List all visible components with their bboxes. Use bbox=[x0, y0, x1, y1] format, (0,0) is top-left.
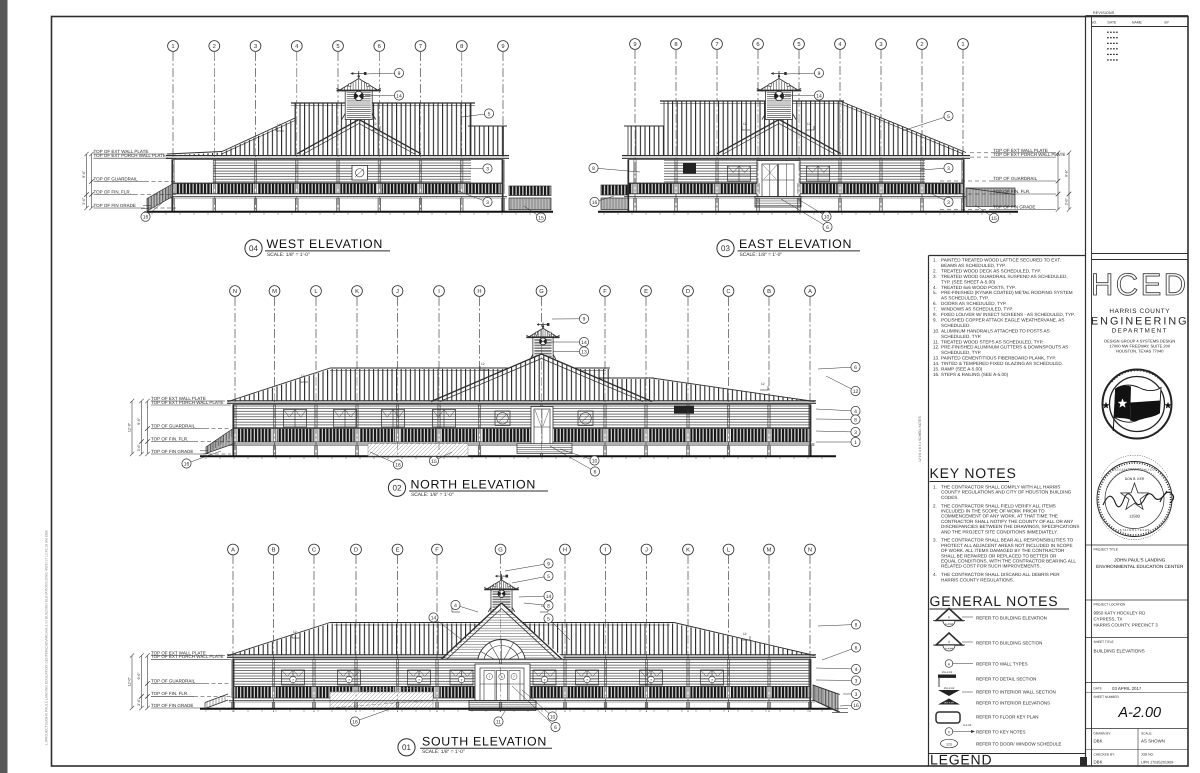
svg-text:10: 10 bbox=[824, 214, 830, 220]
svg-text:11583: 11583 bbox=[1129, 514, 1141, 519]
svg-text:E: E bbox=[644, 289, 648, 295]
svg-text:SCALE:: SCALE: bbox=[1141, 732, 1152, 736]
svg-text:TOP OF FIN GRADE: TOP OF FIN GRADE bbox=[94, 203, 136, 208]
svg-text:14: 14 bbox=[396, 93, 402, 99]
svg-text:6: 6 bbox=[854, 365, 857, 371]
svg-text:D: D bbox=[354, 548, 358, 554]
svg-text:12: 12 bbox=[481, 362, 485, 366]
svg-text:M: M bbox=[767, 548, 772, 554]
svg-text:J: J bbox=[396, 289, 399, 295]
svg-text:7: 7 bbox=[715, 42, 718, 48]
svg-text:7: 7 bbox=[544, 678, 546, 682]
svg-text:LEGEND: LEGEND bbox=[930, 752, 992, 768]
svg-text:TOP OF EXT PORCH WALL PLATE: TOP OF EXT PORCH WALL PLATE bbox=[151, 400, 223, 405]
svg-text:A-#/##: A-#/## bbox=[945, 647, 954, 651]
svg-text:SHEET TITLE: SHEET TITLE bbox=[1094, 640, 1114, 644]
svg-text:SOUTH ELEVATION: SOUTH ELEVATION bbox=[422, 734, 547, 748]
svg-text:14: 14 bbox=[546, 594, 552, 600]
svg-text:GENERAL NOTES: GENERAL NOTES bbox=[930, 593, 1059, 609]
svg-text:7: 7 bbox=[711, 678, 713, 682]
svg-text:6.: 6. bbox=[933, 301, 937, 306]
svg-text:6: 6 bbox=[855, 645, 858, 651]
svg-text:TOP OF EXT PORCH WALL PLATE: TOP OF EXT PORCH WALL PLATE bbox=[993, 152, 1065, 157]
svg-text:#: # bbox=[948, 640, 950, 644]
svg-text:H: H bbox=[563, 548, 567, 554]
svg-text:#: # bbox=[948, 616, 950, 620]
svg-text:HARRIS COUNTY REGULATIONS.: HARRIS COUNTY REGULATIONS. bbox=[941, 577, 1014, 582]
svg-text:7: 7 bbox=[489, 675, 491, 679]
svg-text:4: 4 bbox=[454, 603, 457, 609]
svg-text:A: A bbox=[808, 289, 812, 295]
svg-text:S T A T E O F T E X A S: S T A T E O F T E X A S bbox=[1120, 528, 1150, 532]
svg-text:UPN 17035201909: UPN 17035201909 bbox=[1141, 761, 1173, 765]
svg-text:11: 11 bbox=[496, 719, 501, 725]
svg-text:HOUSTON, TEXAS 77040: HOUSTON, TEXAS 77040 bbox=[1116, 349, 1164, 354]
svg-text:3: 3 bbox=[855, 678, 858, 684]
svg-text:04: 04 bbox=[249, 244, 258, 253]
svg-text:TREATED WOOD GUARDRAIL SUSPEND: TREATED WOOD GUARDRAIL SUSPEND AS SCHEDU… bbox=[941, 274, 1068, 279]
svg-text:8.: 8. bbox=[933, 312, 937, 317]
svg-text:TREATED 6x6 WOOD POSTS, TYP.: TREATED 6x6 WOOD POSTS, TYP. bbox=[941, 285, 1016, 290]
svg-text:WEST ELEVATION: WEST ELEVATION bbox=[267, 237, 384, 251]
svg-text:12: 12 bbox=[373, 122, 377, 126]
svg-text:HARRIS COUNTY, PRECINCT 3: HARRIS COUNTY, PRECINCT 3 bbox=[1094, 623, 1159, 628]
svg-text:2.: 2. bbox=[933, 268, 937, 273]
svg-text:02: 02 bbox=[393, 484, 402, 493]
svg-text:C: C bbox=[312, 547, 316, 554]
svg-text:1: 1 bbox=[171, 44, 174, 50]
svg-text:CYPRESS, TX: CYPRESS, TX bbox=[1094, 617, 1123, 622]
svg-text:8: 8 bbox=[592, 166, 595, 172]
svg-text:8: 8 bbox=[460, 43, 463, 50]
svg-text:TOP OF FIN GRADE: TOP OF FIN GRADE bbox=[151, 449, 193, 454]
svg-text:5: 5 bbox=[547, 574, 550, 580]
svg-text:3: 3 bbox=[879, 41, 882, 48]
svg-text:1.: 1. bbox=[933, 258, 937, 263]
svg-text:12: 12 bbox=[743, 632, 747, 636]
svg-text:TOP OF GUARDRAIL: TOP OF GUARDRAIL bbox=[993, 176, 1038, 181]
svg-text:12.: 12. bbox=[933, 345, 939, 350]
svg-text:TOP OF GUARDRAIL: TOP OF GUARDRAIL bbox=[151, 423, 196, 428]
svg-text:7: 7 bbox=[348, 678, 350, 682]
svg-text:12: 12 bbox=[277, 123, 281, 127]
svg-text:TOP OF FIN. FLR.: TOP OF FIN. FLR. bbox=[94, 189, 131, 194]
svg-text:9: 9 bbox=[501, 43, 504, 50]
svg-text:8: 8 bbox=[855, 622, 858, 628]
svg-text:3.: 3. bbox=[933, 538, 937, 543]
svg-text:DEPARTMENT: DEPARTMENT bbox=[1112, 328, 1168, 335]
svg-text:03 APRIL 2017: 03 APRIL 2017 bbox=[1112, 686, 1142, 691]
svg-text:EAST ELEVATION: EAST ELEVATION bbox=[739, 237, 852, 251]
svg-text:DBK: DBK bbox=[1094, 760, 1103, 765]
svg-text:5: 5 bbox=[336, 44, 339, 50]
svg-text:REFER TO BUILDING SECTION: REFER TO BUILDING SECTION bbox=[976, 641, 1042, 646]
svg-text:CODES.: CODES. bbox=[941, 495, 959, 500]
svg-text:1: 1 bbox=[961, 42, 964, 48]
svg-text:WINDOWS AS SCHEDULED, TYP.: WINDOWS AS SCHEDULED, TYP. bbox=[941, 307, 1013, 312]
svg-text:SCHEDULED.: SCHEDULED. bbox=[941, 323, 971, 328]
svg-text:TOP OF FIN GRADE: TOP OF FIN GRADE bbox=[151, 703, 193, 708]
svg-text:BEAMS AS SCHEDULED, TYP.: BEAMS AS SCHEDULED, TYP. bbox=[941, 263, 1006, 268]
svg-text:HCED: HCED bbox=[1091, 267, 1188, 302]
svg-text:3'-6": 3'-6" bbox=[137, 698, 141, 706]
svg-text:REFER TO DOOR/ WINDOW SCHEDULE: REFER TO DOOR/ WINDOW SCHEDULE bbox=[976, 742, 1061, 747]
svg-text:9.: 9. bbox=[933, 317, 937, 322]
svg-text:16: 16 bbox=[592, 200, 598, 206]
svg-text:4.: 4. bbox=[933, 572, 937, 577]
svg-text:G: G bbox=[498, 547, 503, 554]
svg-text:NAME: NAME bbox=[1132, 20, 1143, 24]
svg-text:TOP OF GUARDRAIL: TOP OF GUARDRAIL bbox=[94, 176, 139, 181]
svg-text:16: 16 bbox=[395, 462, 401, 468]
svg-text:REFER TO DETAIL SECTION: REFER TO DETAIL SECTION bbox=[976, 677, 1036, 682]
svg-text:7: 7 bbox=[292, 678, 294, 682]
svg-text:D: D bbox=[686, 289, 690, 295]
svg-text:PAINTED TREATED WOOD LATTICE S: PAINTED TREATED WOOD LATTICE SECURED TO … bbox=[941, 258, 1061, 263]
svg-text:#/A-#.##: #/A-#.## bbox=[944, 686, 955, 690]
svg-text:A-#.##: A-#.## bbox=[963, 723, 972, 727]
svg-text:3'-6": 3'-6" bbox=[82, 197, 86, 205]
svg-text:3'-6": 3'-6" bbox=[137, 443, 141, 451]
svg-text:SCHEDULED, TYP.: SCHEDULED, TYP. bbox=[941, 350, 981, 355]
svg-text:SCALE: 1/8" = 1'-0": SCALE: 1/8" = 1'-0" bbox=[740, 252, 783, 258]
svg-text:JOB NO:: JOB NO: bbox=[1141, 753, 1154, 757]
svg-text:9: 9 bbox=[583, 317, 586, 323]
svg-text:12'-0": 12'-0" bbox=[128, 676, 132, 686]
svg-text:12: 12 bbox=[301, 374, 305, 378]
svg-text:8: 8 bbox=[547, 603, 550, 609]
svg-text:3: 3 bbox=[947, 166, 950, 172]
svg-text:TYP. (SEE SHEET A-5.00): TYP. (SEE SHEET A-5.00) bbox=[941, 279, 996, 284]
svg-text:REVISIONS: REVISIONS bbox=[1093, 11, 1115, 15]
svg-text:DON B. KER: DON B. KER bbox=[1125, 477, 1145, 481]
svg-text:R E G I S T E R E D A R C H: R E G I S T E R E D A R C H I T E C T bbox=[1112, 469, 1157, 472]
svg-text:01: 01 bbox=[402, 743, 411, 752]
svg-text:ALUMINUM HANDRAILS ATTACHED TO: ALUMINUM HANDRAILS ATTACHED TO POSTS AS bbox=[941, 328, 1050, 333]
svg-text:A: A bbox=[231, 548, 235, 554]
svg-text:2: 2 bbox=[920, 41, 923, 48]
svg-text:3: 3 bbox=[486, 200, 489, 206]
svg-text:N: N bbox=[808, 548, 812, 554]
svg-text:03: 03 bbox=[721, 244, 730, 253]
svg-text:DRAWN BY:: DRAWN BY: bbox=[1094, 732, 1112, 736]
svg-text:3: 3 bbox=[254, 43, 257, 50]
svg-text:CHECKED BY:: CHECKED BY: bbox=[1094, 753, 1116, 757]
svg-text:KEY NOTES: KEY NOTES bbox=[930, 465, 1017, 481]
svg-text:15: 15 bbox=[991, 216, 997, 222]
svg-text:FIXED LOUVER W/ INSECT SCREENS: FIXED LOUVER W/ INSECT SCREENS - AS SCHE… bbox=[941, 312, 1075, 317]
svg-text:9: 9 bbox=[818, 71, 821, 77]
svg-text:TOP OF FIN GRADE: TOP OF FIN GRADE bbox=[993, 205, 1035, 210]
svg-text:16: 16 bbox=[853, 703, 859, 709]
svg-text:9: 9 bbox=[398, 71, 401, 77]
svg-text:PROJECT TITLE: PROJECT TITLE bbox=[1094, 548, 1118, 552]
svg-text:REFER TO INTERIOR WALL SECTION: REFER TO INTERIOR WALL SECTION bbox=[976, 690, 1056, 695]
svg-text:L:\PROJECTS\JOHN PAULS LANDING: L:\PROJECTS\JOHN PAULS LANDING EDUCATION… bbox=[45, 529, 49, 745]
svg-text:16: 16 bbox=[143, 215, 149, 221]
svg-text:12: 12 bbox=[807, 122, 811, 126]
svg-text:TOP OF FIN. FLR.: TOP OF FIN. FLR. bbox=[993, 189, 1030, 194]
svg-text:6: 6 bbox=[554, 725, 557, 731]
svg-text:4: 4 bbox=[855, 667, 858, 673]
svg-text:5.: 5. bbox=[933, 290, 937, 295]
svg-text:12: 12 bbox=[743, 122, 747, 126]
svg-text:5: 5 bbox=[488, 111, 491, 117]
svg-text:10: 10 bbox=[550, 714, 556, 720]
svg-text:8: 8 bbox=[854, 417, 857, 423]
svg-text:NO.: NO. bbox=[1091, 20, 1097, 24]
svg-text:K: K bbox=[686, 548, 690, 554]
svg-text:14: 14 bbox=[431, 615, 437, 621]
svg-text:TOP OF EXT PORCH WALL PLATE: TOP OF EXT PORCH WALL PLATE bbox=[94, 153, 166, 158]
svg-text:TREATED WOOD STEPS AS SCHEDULE: TREATED WOOD STEPS AS SCHEDULED, TYP. bbox=[941, 339, 1043, 344]
svg-text:TOP OF FIN. FLR.: TOP OF FIN. FLR. bbox=[151, 691, 188, 696]
svg-text:SCALE: 1/8" = 1'-0": SCALE: 1/8" = 1'-0" bbox=[267, 252, 310, 258]
svg-text:REFER TO WALL TYPES: REFER TO WALL TYPES bbox=[976, 662, 1028, 667]
svg-text:AS SCHEDULED, TYP.: AS SCHEDULED, TYP. bbox=[941, 296, 989, 301]
svg-text:15.: 15. bbox=[933, 367, 939, 372]
svg-text:9: 9 bbox=[547, 561, 550, 567]
svg-text:10.: 10. bbox=[933, 328, 939, 333]
svg-text:BY: BY bbox=[1165, 20, 1170, 24]
svg-text:7: 7 bbox=[461, 678, 463, 682]
svg-text:M: M bbox=[272, 289, 277, 295]
svg-text:JOHN PAUL'S LANDING: JOHN PAUL'S LANDING bbox=[1114, 558, 1166, 563]
svg-text:A-2.00: A-2.00 bbox=[1117, 705, 1161, 721]
svg-text:14: 14 bbox=[581, 340, 587, 346]
svg-text:15: 15 bbox=[538, 215, 544, 221]
svg-text:4.: 4. bbox=[933, 285, 937, 290]
svg-text:RELATED COST FOR SUCH IMPROVEM: RELATED COST FOR SUCH IMPROVEMENTS. bbox=[941, 564, 1041, 569]
svg-text:SCHEDULED, TYP.: SCHEDULED, TYP. bbox=[941, 334, 981, 339]
svg-text:9950 KATY HOCKLEY RD: 9950 KATY HOCKLEY RD bbox=[1094, 611, 1146, 616]
svg-text:N: N bbox=[233, 289, 237, 295]
svg-text:TOP OF FIN. FLR.: TOP OF FIN. FLR. bbox=[151, 436, 188, 441]
svg-text:AS SHOWN: AS SHOWN bbox=[1141, 739, 1165, 744]
svg-text:3'-6": 3'-6" bbox=[1065, 197, 1069, 205]
svg-text:#/A-#.##: #/A-#.## bbox=[942, 670, 953, 674]
svg-text:5: 5 bbox=[947, 114, 950, 120]
svg-text:9'-6": 9'-6" bbox=[1065, 169, 1069, 177]
svg-text:9'-6": 9'-6" bbox=[137, 417, 141, 425]
svg-text:14.: 14. bbox=[933, 361, 939, 366]
svg-text:#/A-#.##: #/A-#.## bbox=[944, 702, 954, 705]
svg-text:ENGINEERING: ENGINEERING bbox=[1091, 316, 1189, 328]
svg-text:5: 5 bbox=[547, 616, 550, 622]
svg-text:SHEET NUMBER: SHEET NUMBER bbox=[1094, 695, 1120, 699]
svg-text:A-#/##: A-#/## bbox=[945, 622, 954, 626]
svg-text:B: B bbox=[272, 548, 276, 554]
svg-text:7: 7 bbox=[650, 678, 652, 682]
svg-text:COUNTY REGULATIONS AND CITY OF: COUNTY REGULATIONS AND CITY OF HOUSTON B… bbox=[941, 490, 1072, 495]
svg-text:15: 15 bbox=[431, 459, 437, 465]
svg-text:9: 9 bbox=[633, 41, 636, 48]
svg-text:G: G bbox=[539, 288, 544, 295]
svg-text:3: 3 bbox=[854, 430, 857, 436]
svg-text:DBK: DBK bbox=[1094, 739, 1103, 744]
svg-text:REFER TO FLOOR KEY PLAN: REFER TO FLOOR KEY PLAN bbox=[976, 715, 1039, 720]
svg-text:PAINTED CEMENTITIOUS FIBERBOAR: PAINTED CEMENTITIOUS FIBERBOARD PLANK, T… bbox=[941, 356, 1056, 361]
svg-text:12: 12 bbox=[761, 382, 765, 386]
svg-text:7: 7 bbox=[586, 678, 588, 682]
svg-text:ENVIRONMENTAL EDUCATION CENTER: ENVIRONMENTAL EDUCATION CENTER bbox=[1096, 564, 1184, 569]
svg-text:7: 7 bbox=[419, 44, 422, 50]
svg-text:5: 5 bbox=[797, 42, 800, 48]
svg-text:HARRIS COUNTY: HARRIS COUNTY bbox=[1109, 308, 1170, 315]
svg-text:POLISHED COPPER ATTACK EAGLE W: POLISHED COPPER ATTACK EAGLE WEATHERVANE… bbox=[941, 317, 1064, 322]
svg-text:1: 1 bbox=[854, 440, 857, 446]
svg-text:DATE: DATE bbox=[1094, 687, 1102, 691]
svg-text:H: H bbox=[477, 289, 481, 295]
svg-text:TOP OF GUARDRAIL: TOP OF GUARDRAIL bbox=[151, 678, 196, 683]
svg-text:16.: 16. bbox=[933, 372, 939, 377]
svg-text:E: E bbox=[396, 548, 400, 554]
svg-text:TREATED WOOD DECK AS SCHEDULED: TREATED WOOD DECK AS SCHEDULED, TYP. bbox=[941, 268, 1041, 273]
svg-text:C: C bbox=[726, 288, 730, 295]
svg-text:REFER TO BUILDING ELEVATION: REFER TO BUILDING ELEVATION bbox=[976, 616, 1047, 621]
svg-text:RAMP (SEE A-5.00): RAMP (SEE A-5.00) bbox=[941, 367, 983, 372]
svg-text:3: 3 bbox=[855, 692, 858, 698]
svg-text:9'-6": 9'-6" bbox=[82, 170, 86, 178]
svg-text:13.: 13. bbox=[933, 356, 939, 361]
svg-text:STEPS & RAILING (SEE A-5.00): STEPS & RAILING (SEE A-5.00) bbox=[941, 372, 1009, 377]
svg-text:PRE-FINISHED (KYNAR COATED) ME: PRE-FINISHED (KYNAR COATED) METAL ROOFIN… bbox=[941, 290, 1073, 295]
svg-text:2.: 2. bbox=[933, 503, 937, 508]
svg-text:DATE: DATE bbox=[1108, 20, 1118, 24]
svg-text:3: 3 bbox=[947, 200, 950, 206]
svg-text:16: 16 bbox=[184, 461, 190, 467]
svg-text:14: 14 bbox=[816, 93, 822, 99]
svg-text:DOORS AS SCHEDULED, TYP.: DOORS AS SCHEDULED, TYP. bbox=[941, 301, 1007, 306]
svg-text:6: 6 bbox=[378, 43, 381, 50]
svg-text:12'-0": 12'-0" bbox=[128, 422, 132, 432]
svg-text:6: 6 bbox=[594, 469, 597, 475]
svg-text:F: F bbox=[435, 548, 439, 554]
svg-text:SCALE: 1/8" = 1'-0": SCALE: 1/8" = 1'-0" bbox=[422, 749, 465, 755]
svg-text:3.: 3. bbox=[933, 274, 937, 279]
svg-text:BUILDING ELEVATIONS: BUILDING ELEVATIONS bbox=[1094, 649, 1145, 654]
svg-text:NORTH ELEVATION: NORTH ELEVATION bbox=[411, 477, 536, 491]
svg-text:REFER TO INTERIOR ELEVATIONS: REFER TO INTERIOR ELEVATIONS bbox=[976, 701, 1050, 706]
svg-text:16: 16 bbox=[352, 719, 358, 725]
svg-text:123: 123 bbox=[946, 742, 952, 746]
svg-text:TINTED & TEMPERED FIXED GLAZIN: TINTED & TEMPERED FIXED GLAZING AS SCHED… bbox=[941, 361, 1063, 366]
svg-text:F: F bbox=[603, 289, 607, 295]
svg-text:6: 6 bbox=[501, 675, 503, 679]
svg-text:11.: 11. bbox=[933, 339, 939, 344]
svg-text:7: 7 bbox=[418, 678, 420, 682]
svg-text:9'-6": 9'-6" bbox=[137, 672, 141, 680]
svg-text:REFER TO KEY NOTES: REFER TO KEY NOTES bbox=[976, 730, 1026, 735]
svg-text:10: 10 bbox=[592, 458, 598, 464]
svg-text:PROJECT LOCATION: PROJECT LOCATION bbox=[1094, 603, 1126, 607]
svg-text:6: 6 bbox=[756, 41, 759, 48]
svg-text:6: 6 bbox=[826, 225, 829, 231]
svg-text:12: 12 bbox=[293, 630, 297, 634]
svg-text:12 9 6 4 8 3 1 SCHED. NOTES: 12 9 6 4 8 3 1 SCHED. NOTES bbox=[918, 415, 922, 462]
svg-text:TOP OF EXT PORCH WALL PLATE: TOP OF EXT PORCH WALL PLATE bbox=[151, 654, 223, 659]
svg-text:7: 7 bbox=[513, 675, 515, 679]
svg-text:8: 8 bbox=[674, 41, 677, 48]
svg-text:3: 3 bbox=[486, 166, 489, 172]
svg-text:K: K bbox=[355, 289, 359, 295]
svg-text:4: 4 bbox=[854, 409, 857, 415]
svg-text:B: B bbox=[767, 289, 771, 295]
svg-text:#: # bbox=[948, 730, 950, 734]
svg-text:7.: 7. bbox=[933, 307, 937, 312]
svg-text:J: J bbox=[645, 548, 648, 554]
svg-text:1.: 1. bbox=[933, 485, 937, 490]
svg-text:13: 13 bbox=[581, 349, 587, 355]
svg-text:2: 2 bbox=[213, 43, 216, 50]
svg-text:AND THE PROJECT SITE CONDITION: AND THE PROJECT SITE CONDITIONS IMMEDIAT… bbox=[941, 529, 1058, 534]
svg-text:SCALE: 1/8" = 1'-0": SCALE: 1/8" = 1'-0" bbox=[411, 492, 454, 498]
svg-text:PRE-FINISHED ALUMINUM GUTTERS: PRE-FINISHED ALUMINUM GUTTERS & DOWNSPOU… bbox=[941, 345, 1068, 350]
svg-text:12: 12 bbox=[853, 389, 859, 395]
